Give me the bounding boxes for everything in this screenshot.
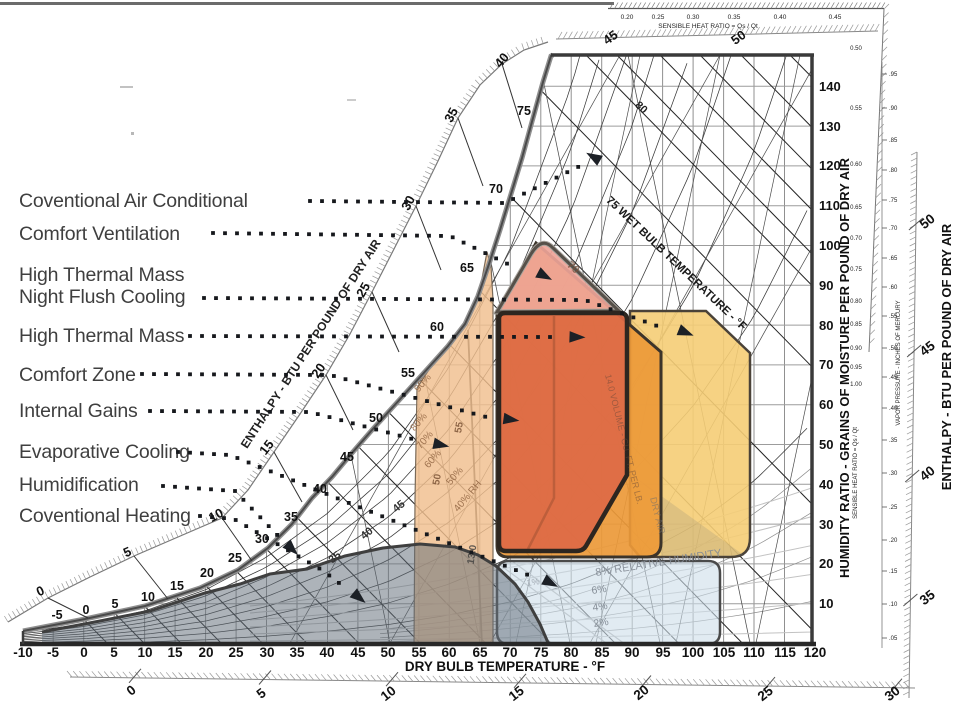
svg-text:.95: .95 xyxy=(889,72,898,78)
svg-text:Night Flush Cooling: Night Flush Cooling xyxy=(19,286,185,308)
svg-text:5: 5 xyxy=(112,597,119,611)
svg-text:55: 55 xyxy=(401,366,415,380)
svg-text:.15: .15 xyxy=(889,569,898,575)
svg-text:10: 10 xyxy=(137,645,152,660)
svg-text:Comfort Zone: Comfort Zone xyxy=(19,364,136,386)
svg-text:.05: .05 xyxy=(889,636,898,642)
svg-text:90: 90 xyxy=(819,278,833,293)
svg-text:1.00: 1.00 xyxy=(850,382,862,388)
svg-text:0: 0 xyxy=(80,645,88,660)
svg-text:0.80: 0.80 xyxy=(850,299,862,305)
svg-text:4%: 4% xyxy=(592,600,609,614)
svg-text:0.70: 0.70 xyxy=(850,236,862,242)
svg-text:Coventional Heating: Coventional Heating xyxy=(19,505,191,527)
svg-text:2%: 2% xyxy=(593,616,610,630)
svg-text:0.75: 0.75 xyxy=(850,267,862,273)
svg-text:Humidification: Humidification xyxy=(19,474,139,496)
svg-text:.65: .65 xyxy=(889,256,898,262)
svg-text:.60: .60 xyxy=(889,285,898,291)
svg-text:0.45: 0.45 xyxy=(829,14,842,21)
svg-text:0.55: 0.55 xyxy=(850,106,862,112)
svg-text:25: 25 xyxy=(228,551,242,565)
svg-text:70: 70 xyxy=(502,645,517,660)
svg-text:35: 35 xyxy=(289,645,305,660)
svg-text:60: 60 xyxy=(819,397,833,412)
svg-text:85: 85 xyxy=(594,645,610,660)
svg-text:ENTHALPY - BTU PER POUND OF DR: ENTHALPY - BTU PER POUND OF DRY AIR xyxy=(939,223,954,490)
svg-text:.25: .25 xyxy=(889,505,898,511)
svg-text:0.35: 0.35 xyxy=(728,14,741,21)
svg-text:0.85: 0.85 xyxy=(850,322,862,328)
svg-text:.75: .75 xyxy=(889,198,898,204)
svg-text:10: 10 xyxy=(141,590,155,604)
svg-text:.35: .35 xyxy=(889,438,898,444)
svg-text:0.60: 0.60 xyxy=(850,162,862,168)
svg-text:6%: 6% xyxy=(591,583,608,597)
svg-text:.70: .70 xyxy=(889,226,898,232)
svg-text:130: 130 xyxy=(819,119,841,134)
svg-text:-5: -5 xyxy=(47,645,59,660)
svg-text:0.50: 0.50 xyxy=(850,46,862,52)
svg-text:15: 15 xyxy=(167,645,183,660)
svg-text:20: 20 xyxy=(198,645,213,660)
svg-text:15: 15 xyxy=(170,579,184,593)
svg-text:75: 75 xyxy=(517,104,531,118)
svg-text:0: 0 xyxy=(83,603,90,617)
svg-text:Evaporative Cooling: Evaporative Cooling xyxy=(19,441,190,463)
svg-text:95: 95 xyxy=(655,645,671,660)
svg-text:10: 10 xyxy=(819,596,833,611)
svg-text:DRY BULB TEMPERATURE - °F: DRY BULB TEMPERATURE - °F xyxy=(405,659,605,674)
svg-text:0.95: 0.95 xyxy=(850,365,862,371)
svg-text:110: 110 xyxy=(743,645,765,660)
svg-text:1%: 1% xyxy=(526,576,540,588)
svg-text:HUMIDITY RATIO - GRAINS OF MOI: HUMIDITY RATIO - GRAINS OF MOISTURE PER … xyxy=(837,157,852,578)
svg-text:60: 60 xyxy=(441,645,456,660)
svg-text:0.65: 0.65 xyxy=(850,205,862,211)
svg-text:75: 75 xyxy=(533,645,549,660)
svg-text:70: 70 xyxy=(819,357,833,372)
svg-text:0.20: 0.20 xyxy=(621,14,634,21)
svg-text:105: 105 xyxy=(713,645,736,660)
svg-text:30: 30 xyxy=(259,645,274,660)
svg-text:Internal Gains: Internal Gains xyxy=(19,400,138,422)
svg-text:120: 120 xyxy=(804,645,827,660)
svg-text:45: 45 xyxy=(340,450,354,464)
svg-text:0.90: 0.90 xyxy=(850,346,862,352)
svg-text:100: 100 xyxy=(682,645,705,660)
svg-text:80: 80 xyxy=(819,318,833,333)
svg-text:VAPOR PRESSURE - INCHES OF MER: VAPOR PRESSURE - INCHES OF MERCURY xyxy=(896,300,902,425)
svg-text:.80: .80 xyxy=(889,168,898,174)
svg-text:140: 140 xyxy=(819,79,841,94)
svg-text:55: 55 xyxy=(411,645,427,660)
svg-text:30: 30 xyxy=(819,517,833,532)
svg-text:65: 65 xyxy=(460,261,474,275)
svg-text:Comfort Ventilation: Comfort Ventilation xyxy=(19,223,180,245)
svg-text:Coventional Air Conditional: Coventional Air Conditional xyxy=(19,190,248,212)
svg-text:.10: .10 xyxy=(889,602,898,608)
svg-text:35: 35 xyxy=(284,510,298,524)
svg-text:40: 40 xyxy=(319,645,334,660)
svg-text:50: 50 xyxy=(380,645,395,660)
svg-text:45: 45 xyxy=(350,645,366,660)
svg-text:0.25: 0.25 xyxy=(652,14,665,21)
svg-text:High Thermal Mass: High Thermal Mass xyxy=(19,264,185,286)
svg-text:High Thermal Mass: High Thermal Mass xyxy=(19,325,185,347)
svg-text:50: 50 xyxy=(819,437,833,452)
svg-text:50: 50 xyxy=(369,411,383,425)
svg-text:.85: .85 xyxy=(889,138,898,144)
svg-text:40: 40 xyxy=(819,477,833,492)
svg-text:0.40: 0.40 xyxy=(774,14,787,21)
svg-text:SENSIBLE HEAT RATIO = Qs / Qt: SENSIBLE HEAT RATIO = Qs / Qt xyxy=(853,427,859,519)
svg-text:60: 60 xyxy=(430,320,444,334)
svg-text:20: 20 xyxy=(819,556,833,571)
svg-text:20: 20 xyxy=(200,566,214,580)
svg-text:.20: .20 xyxy=(889,538,898,544)
svg-text:90: 90 xyxy=(624,645,639,660)
svg-text:-5: -5 xyxy=(51,608,62,622)
svg-text:115: 115 xyxy=(774,645,796,660)
svg-text:70: 70 xyxy=(489,182,503,196)
svg-text:-10: -10 xyxy=(13,645,33,660)
svg-text:.90: .90 xyxy=(889,106,898,112)
svg-text:SENSIBLE HEAT RATIO = Qs / Qt: SENSIBLE HEAT RATIO = Qs / Qt xyxy=(658,23,758,30)
svg-text:0.30: 0.30 xyxy=(687,14,700,21)
svg-text:5: 5 xyxy=(110,645,118,660)
svg-text:80: 80 xyxy=(563,645,578,660)
svg-text:25: 25 xyxy=(228,645,244,660)
svg-text:.30: .30 xyxy=(889,471,898,477)
svg-text:65: 65 xyxy=(472,645,488,660)
